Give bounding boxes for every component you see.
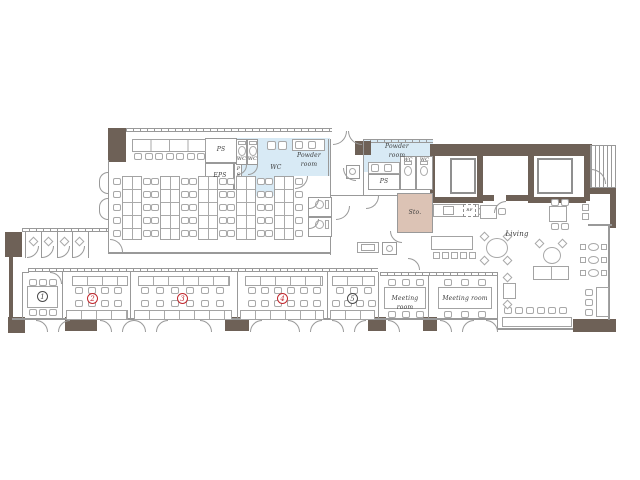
- chair: [265, 217, 273, 224]
- chair: [181, 204, 189, 211]
- door-arc: [333, 131, 347, 145]
- chair: [101, 287, 109, 294]
- label-storage: Sto.: [397, 208, 433, 217]
- desk-cluster: [160, 176, 180, 240]
- chair: [300, 287, 308, 294]
- chair: [535, 239, 545, 249]
- chair: [29, 279, 37, 286]
- door-arc: [408, 258, 420, 270]
- partition-wall: [88, 232, 89, 258]
- wall: [5, 232, 22, 257]
- room-number-2: 2: [87, 293, 98, 304]
- chair: [265, 230, 273, 237]
- chair: [364, 287, 372, 294]
- chair: [151, 178, 159, 185]
- chair: [388, 279, 396, 286]
- label-living: Living: [495, 229, 539, 240]
- partition-wall: [62, 272, 63, 318]
- chair: [368, 300, 376, 307]
- chair: [227, 230, 235, 237]
- chair: [143, 217, 151, 224]
- chair: [257, 191, 265, 198]
- sink-icon: [371, 164, 379, 172]
- table: [549, 206, 567, 222]
- door-arc: [336, 206, 350, 220]
- window-wall: [126, 128, 332, 132]
- kitchen-sink: [443, 206, 454, 215]
- label-wc-area: WC: [262, 163, 290, 172]
- chair: [416, 279, 424, 286]
- chair: [75, 237, 85, 247]
- counter: [596, 287, 609, 317]
- chair: [113, 191, 121, 198]
- chair: [176, 153, 184, 160]
- chair: [75, 300, 83, 307]
- chair: [171, 287, 179, 294]
- chair: [402, 279, 410, 286]
- window-wall: [28, 268, 378, 272]
- chair: [75, 287, 83, 294]
- label-wc-booth-1: WC: [236, 156, 247, 162]
- floor-plan: PS EPS PS WC WC WC Powder room Powder ro…: [0, 0, 640, 480]
- desk: [503, 283, 516, 299]
- desk-row: [245, 276, 323, 286]
- window-wall: [22, 228, 108, 232]
- chair: [478, 311, 486, 318]
- stool: [451, 252, 458, 259]
- chair: [585, 309, 593, 316]
- chair: [44, 237, 54, 247]
- chair: [585, 289, 593, 296]
- sofa: [533, 266, 569, 280]
- sink-icon: [384, 164, 392, 172]
- chair: [265, 178, 273, 185]
- chair: [151, 230, 159, 237]
- desk-row: [132, 139, 206, 152]
- door-arc: [58, 246, 70, 258]
- chair: [287, 287, 295, 294]
- chair: [113, 230, 121, 237]
- window-band: [497, 328, 573, 330]
- chair: [461, 311, 469, 318]
- elevator-shaft: [450, 158, 476, 194]
- wall: [506, 195, 530, 201]
- chair: [141, 287, 149, 294]
- chair: [189, 230, 197, 237]
- chair: [248, 287, 256, 294]
- label-wc-right-2: WC: [416, 157, 433, 163]
- partition-wall: [22, 272, 23, 318]
- stool: [588, 256, 599, 264]
- stool: [582, 204, 589, 211]
- chair: [143, 204, 151, 211]
- toilet-icon: [420, 166, 428, 176]
- stool: [580, 270, 586, 276]
- partition-wall: [108, 160, 109, 252]
- round-table: [543, 247, 561, 264]
- chair: [261, 287, 269, 294]
- chair: [113, 204, 121, 211]
- stool: [601, 270, 607, 276]
- chair: [114, 300, 122, 307]
- stool: [601, 257, 607, 263]
- chair: [227, 217, 235, 224]
- stool: [582, 213, 589, 220]
- partition-wall: [130, 272, 131, 318]
- chair: [388, 311, 396, 318]
- sink-icon: [278, 141, 287, 150]
- chair: [478, 279, 486, 286]
- door-arc: [134, 320, 146, 332]
- chair: [145, 153, 153, 160]
- chair: [227, 204, 235, 211]
- label-ps-right-shaft: PS: [368, 177, 400, 186]
- wall: [435, 197, 479, 203]
- chair: [101, 300, 109, 307]
- chair: [295, 230, 303, 237]
- chair: [201, 300, 209, 307]
- stool: [580, 257, 586, 263]
- chair: [548, 307, 556, 314]
- desk-row: [66, 310, 128, 320]
- door-arc: [440, 320, 452, 332]
- toilet-icon: [249, 146, 257, 156]
- bench: [502, 317, 572, 327]
- stool: [460, 252, 467, 259]
- toilet-icon: [404, 166, 412, 176]
- toilet-icon: [325, 200, 329, 209]
- wall: [573, 319, 616, 332]
- chair: [257, 204, 265, 211]
- door-arc: [332, 320, 344, 332]
- toilet-icon: [325, 220, 329, 229]
- partition-wall: [327, 272, 328, 318]
- chair: [186, 287, 194, 294]
- chair: [551, 199, 559, 206]
- door-arc: [27, 246, 39, 258]
- chair: [29, 309, 37, 316]
- window-wall: [380, 272, 497, 276]
- chair: [444, 279, 452, 286]
- chair: [189, 178, 197, 185]
- door-arc: [99, 172, 108, 194]
- stool: [588, 243, 599, 251]
- chair: [113, 178, 121, 185]
- chair: [151, 191, 159, 198]
- door-arc: [295, 176, 308, 189]
- chair: [287, 300, 295, 307]
- chair: [151, 217, 159, 224]
- chair: [295, 191, 303, 198]
- wall: [430, 144, 592, 156]
- desk-row: [72, 276, 128, 286]
- door-arc: [110, 239, 123, 252]
- stool: [433, 252, 440, 259]
- chair: [503, 256, 513, 266]
- toilet-icon: [249, 141, 257, 145]
- chair: [551, 223, 559, 230]
- chair: [265, 191, 273, 198]
- chair: [300, 300, 308, 307]
- chair: [151, 204, 159, 211]
- door-arc: [288, 320, 300, 332]
- stool: [469, 252, 476, 259]
- wall: [9, 257, 13, 320]
- chair: [197, 153, 205, 160]
- label-eps-shaft: EPS: [204, 171, 236, 180]
- chair: [257, 230, 265, 237]
- label-refrigerator: RF: [463, 208, 476, 212]
- chair: [156, 287, 164, 294]
- partition-wall: [378, 272, 379, 318]
- room-number-3: 3: [177, 293, 188, 304]
- desk-row: [332, 276, 375, 286]
- chair: [559, 307, 567, 314]
- chair: [444, 311, 452, 318]
- door-arc: [42, 246, 54, 258]
- desk-row: [138, 276, 230, 286]
- chair: [219, 230, 227, 237]
- door-arc: [366, 196, 379, 209]
- chair: [461, 279, 469, 286]
- chair: [248, 300, 256, 307]
- window-band: [108, 252, 330, 254]
- door-arc: [156, 320, 168, 332]
- chair: [114, 287, 122, 294]
- chair: [49, 309, 57, 316]
- chair: [257, 217, 265, 224]
- door-arc: [73, 246, 85, 258]
- chair: [141, 300, 149, 307]
- sink-icon: [267, 141, 276, 150]
- door-arc: [36, 320, 48, 332]
- door-arc: [99, 198, 108, 220]
- chair: [295, 204, 303, 211]
- desk-cluster: [236, 176, 256, 240]
- chair: [219, 191, 227, 198]
- door-arc: [122, 320, 134, 332]
- chair: [261, 300, 269, 307]
- chair: [181, 178, 189, 185]
- chair: [480, 256, 490, 266]
- toilet-icon: [238, 146, 246, 156]
- chair: [39, 309, 47, 316]
- chair: [216, 287, 224, 294]
- chair: [416, 311, 424, 318]
- partition-wall: [328, 139, 329, 176]
- sink-icon: [386, 245, 393, 252]
- label-powder-room-left: Powder room: [291, 151, 327, 169]
- door-arc: [388, 320, 400, 332]
- chair: [336, 287, 344, 294]
- stool: [580, 244, 586, 250]
- chair: [189, 217, 197, 224]
- partition-wall: [497, 272, 498, 329]
- partition-wall: [237, 272, 238, 318]
- chair: [113, 217, 121, 224]
- label-meeting-room-right: Meeting room: [438, 294, 492, 303]
- chair: [332, 300, 340, 307]
- door-arc: [348, 131, 362, 145]
- partition-wall: [428, 276, 429, 318]
- label-ps-side-shaft: PS: [235, 167, 242, 179]
- chair: [219, 217, 227, 224]
- door-arc: [50, 272, 62, 284]
- chair: [143, 178, 151, 185]
- desk-cluster: [274, 176, 294, 240]
- stool: [601, 244, 607, 250]
- chair: [219, 204, 227, 211]
- chair: [181, 191, 189, 198]
- chair: [39, 279, 47, 286]
- desk-row: [330, 310, 375, 320]
- chair: [143, 230, 151, 237]
- door-arc: [494, 201, 506, 213]
- chair: [156, 300, 164, 307]
- counter: [361, 244, 375, 251]
- chair: [166, 153, 174, 160]
- desk-cluster: [122, 176, 142, 240]
- chair: [585, 299, 593, 306]
- chair: [402, 311, 410, 318]
- wall: [482, 195, 494, 201]
- chair: [503, 273, 513, 283]
- toilet-icon: [238, 141, 246, 145]
- chair: [60, 237, 70, 247]
- partition-wall: [25, 232, 26, 258]
- chair: [561, 199, 569, 206]
- door-arc: [250, 320, 262, 332]
- door-arc: [462, 320, 474, 332]
- chair: [216, 300, 224, 307]
- chair: [29, 237, 39, 247]
- room-number-4: 4: [277, 293, 288, 304]
- label-wc-booth-2: WC: [247, 156, 258, 162]
- round-table: [486, 238, 508, 258]
- chair: [187, 153, 195, 160]
- wall: [584, 188, 612, 194]
- chair: [181, 217, 189, 224]
- chair: [313, 300, 321, 307]
- chair: [134, 153, 142, 160]
- chair: [295, 217, 303, 224]
- door-arc: [58, 320, 70, 332]
- chair: [155, 153, 163, 160]
- stool: [442, 252, 449, 259]
- room-number-1: 1: [37, 291, 48, 302]
- sink-icon: [295, 141, 303, 149]
- desk-cluster: [198, 176, 218, 240]
- chair: [515, 307, 523, 314]
- door-arc: [310, 320, 322, 332]
- table: [431, 236, 473, 250]
- label-ps-shaft: PS: [205, 145, 237, 154]
- wall: [108, 128, 126, 162]
- chair: [265, 204, 273, 211]
- room-number-5: 5: [347, 293, 358, 304]
- partition-wall: [22, 272, 29, 273]
- chair: [181, 230, 189, 237]
- chair: [558, 239, 568, 249]
- door-arc: [343, 168, 356, 181]
- chair: [537, 307, 545, 314]
- chair: [227, 191, 235, 198]
- chair: [480, 232, 490, 242]
- label-wc-right-1: WC: [400, 157, 416, 163]
- chair: [189, 191, 197, 198]
- chair: [189, 204, 197, 211]
- stool: [588, 269, 599, 277]
- chair: [143, 191, 151, 198]
- wall: [533, 197, 586, 203]
- chair: [526, 307, 534, 314]
- partition-wall: [363, 139, 364, 196]
- door-arc: [100, 320, 112, 332]
- chair: [201, 287, 209, 294]
- door-arc: [354, 320, 366, 332]
- chair: [561, 223, 569, 230]
- elevator-shaft: [537, 158, 573, 194]
- sink-icon: [308, 141, 316, 149]
- chair: [257, 178, 265, 185]
- desk-row: [240, 310, 324, 320]
- desk-row: [134, 310, 232, 320]
- chair: [313, 287, 321, 294]
- label-meeting-room-left: Meeting room: [384, 294, 426, 312]
- door-arc: [200, 320, 212, 332]
- partition-wall: [330, 195, 397, 196]
